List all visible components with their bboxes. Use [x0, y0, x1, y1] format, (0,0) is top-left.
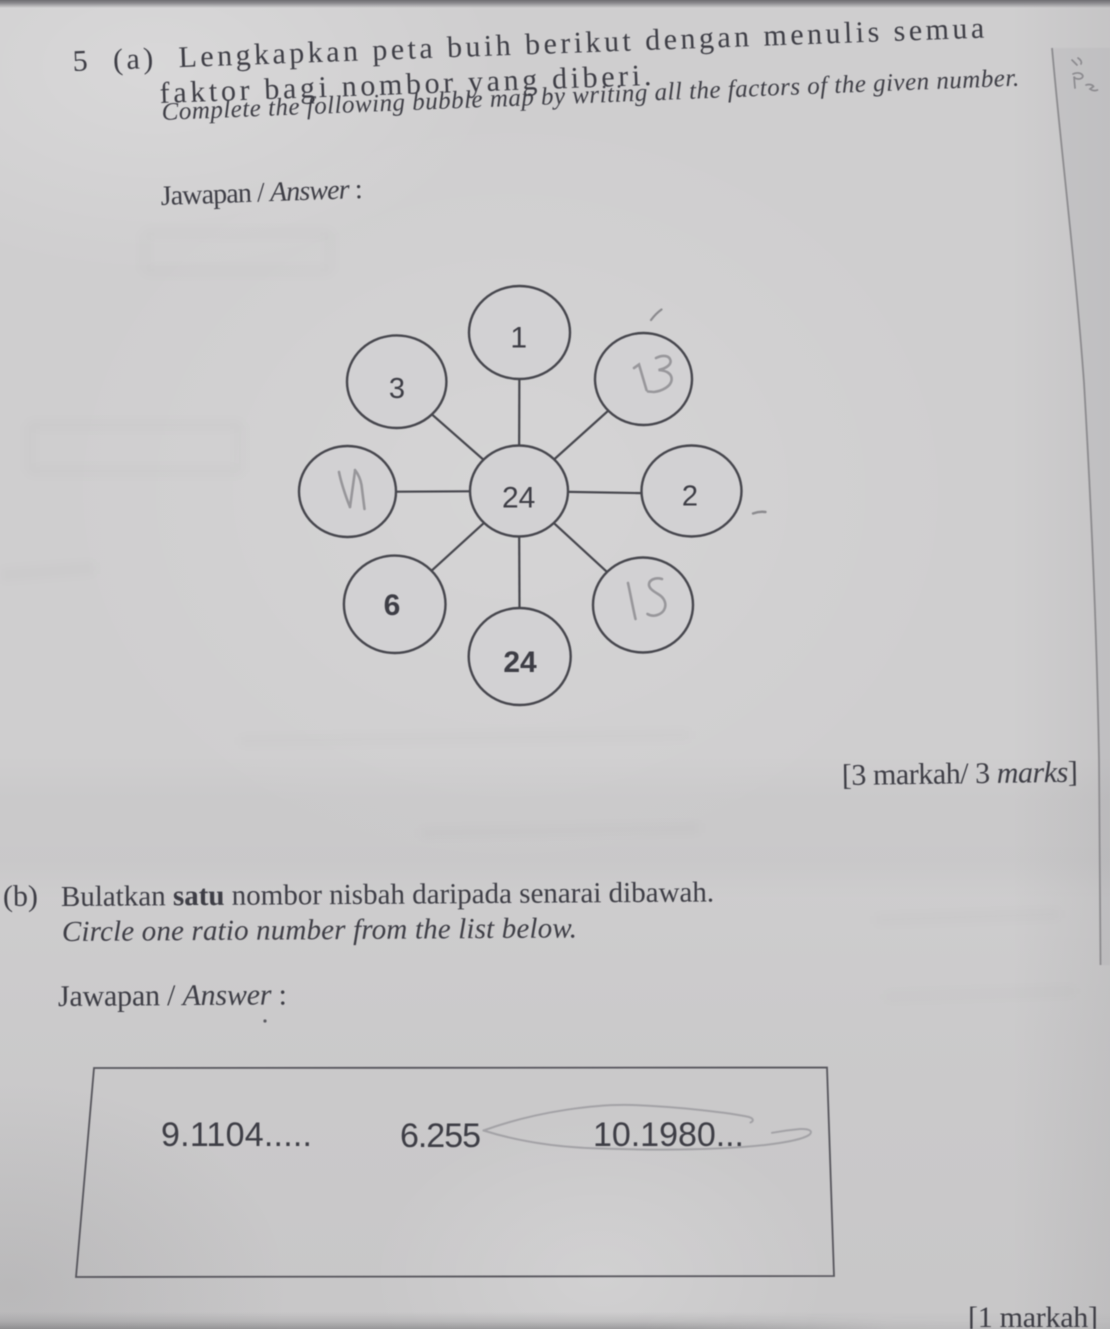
svg-text:24: 24 [503, 646, 537, 679]
svg-text:6: 6 [384, 589, 401, 622]
svg-text:2: 2 [682, 481, 698, 513]
svg-text:[3 markah/ 3 marks]: [3 markah/ 3 marks] [842, 756, 1078, 792]
svg-text:Bulatkan satu nombor nisbah da: Bulatkan satu nombor nisbah daripada sen… [61, 876, 714, 913]
svg-text:9.1104.....: 9.1104..... [161, 1116, 312, 1154]
svg-text:3: 3 [389, 373, 405, 405]
svg-text:[1 markah]: [1 markah] [968, 1301, 1098, 1329]
svg-text:Jawapan / Answer :: Jawapan / Answer : [58, 978, 287, 1013]
svg-text:24: 24 [502, 482, 535, 515]
svg-text:1: 1 [510, 322, 527, 355]
svg-text:Circle one ratio number from t: Circle one ratio number from the list be… [62, 912, 577, 948]
svg-text:6.255: 6.255 [400, 1117, 481, 1155]
svg-text:(b): (b) [3, 880, 38, 913]
svg-text:Jawapan / Answer :: Jawapan / Answer : [160, 174, 363, 212]
